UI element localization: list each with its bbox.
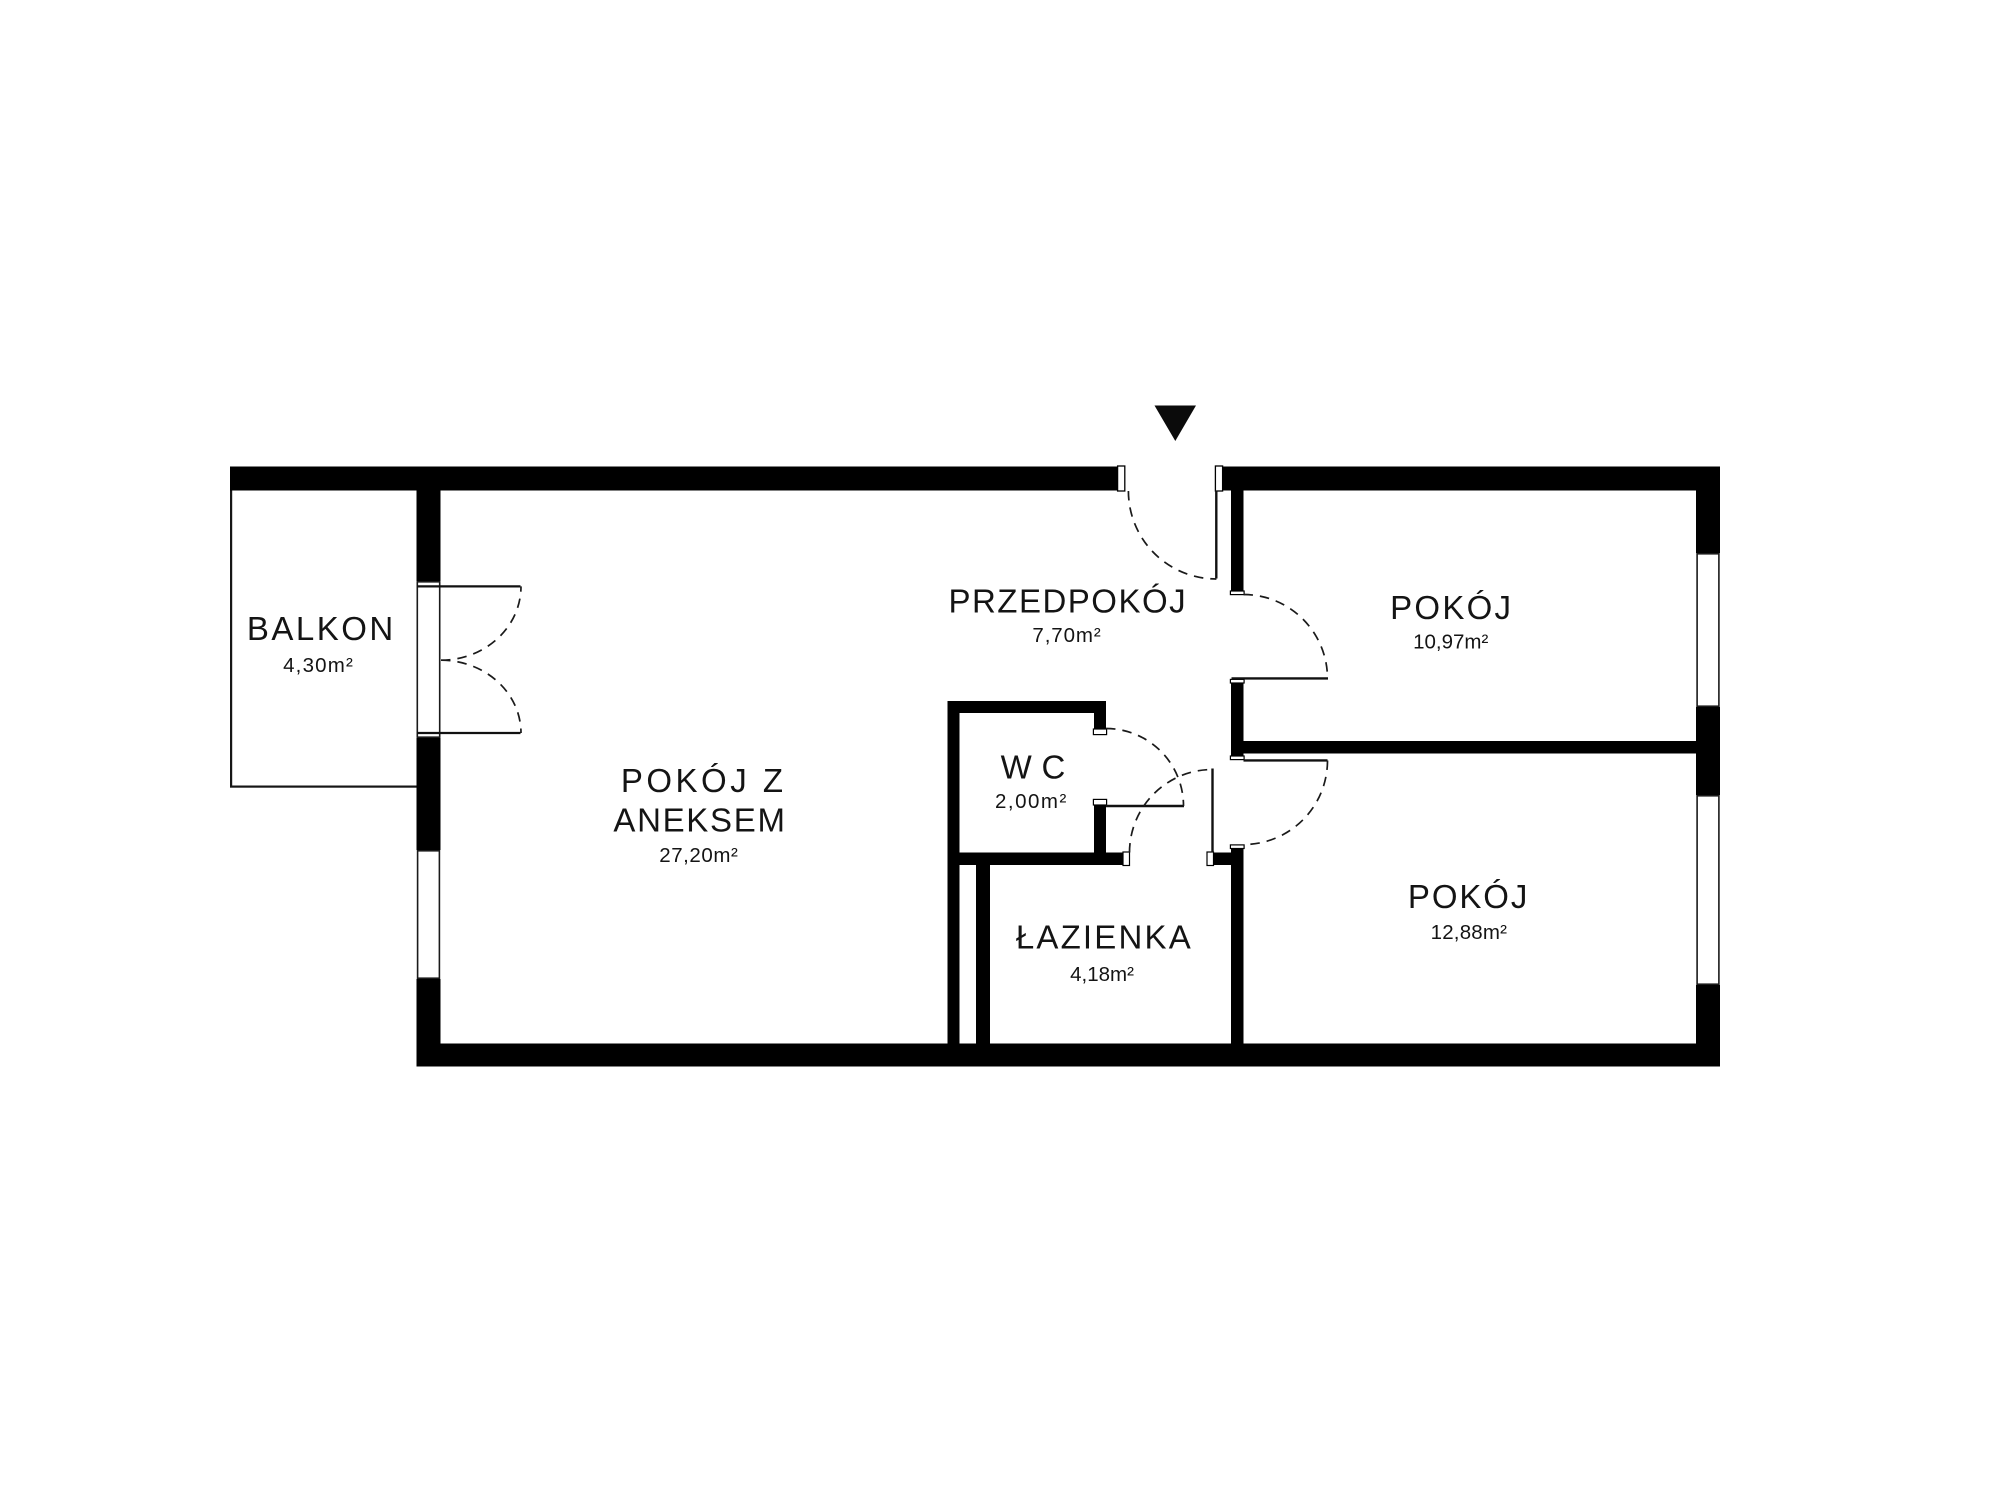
svg-text:POKÓJ: POKÓJ: [1408, 878, 1529, 915]
svg-text:4,18m²: 4,18m²: [1070, 963, 1134, 986]
svg-text:POKÓJ: POKÓJ: [1390, 589, 1513, 626]
svg-text:POKÓJ Z: POKÓJ Z: [621, 762, 787, 799]
svg-text:ŁAZIENKA: ŁAZIENKA: [1016, 919, 1193, 956]
svg-text:2,00m²: 2,00m²: [995, 790, 1068, 813]
svg-text:ANEKSEM: ANEKSEM: [613, 802, 786, 839]
svg-text:4,30m²: 4,30m²: [283, 654, 354, 677]
svg-text:12,88m²: 12,88m²: [1431, 921, 1508, 944]
svg-text:7,70m²: 7,70m²: [1032, 624, 1101, 647]
svg-text:BALKON: BALKON: [247, 610, 396, 647]
svg-text:10,97m²: 10,97m²: [1413, 631, 1488, 654]
svg-text:PRZEDPOKÓJ: PRZEDPOKÓJ: [948, 583, 1187, 620]
svg-text:27,20m²: 27,20m²: [659, 844, 738, 867]
svg-text:WC: WC: [1001, 749, 1076, 786]
